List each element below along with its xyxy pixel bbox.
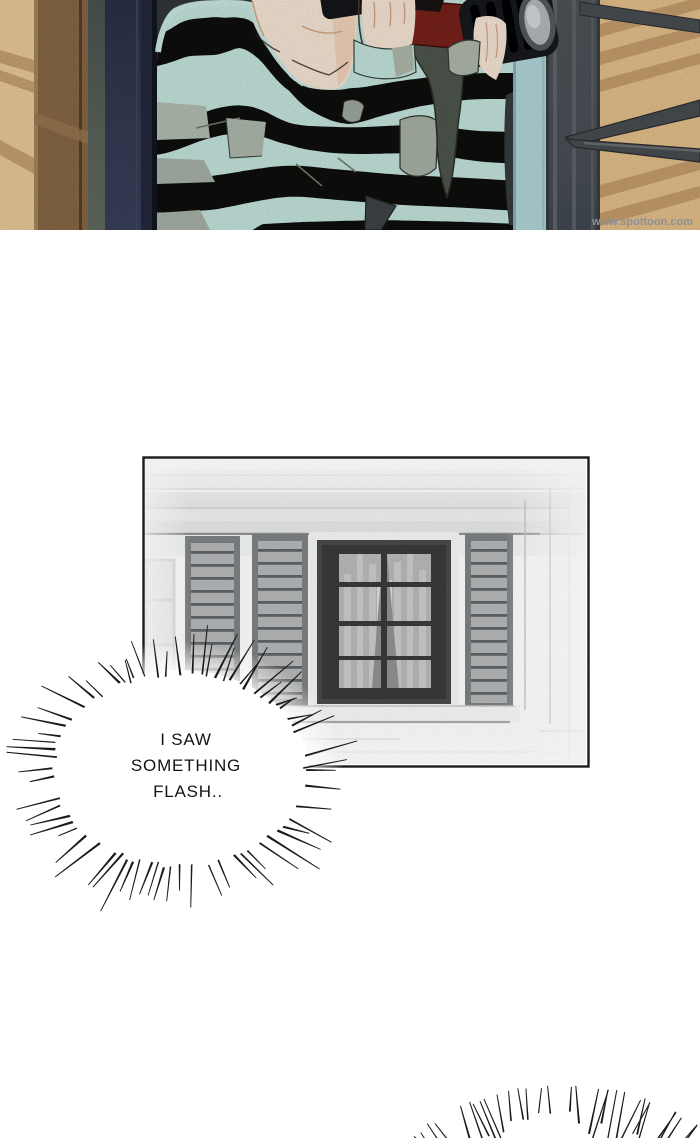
svg-text:www.spottoon.com: www.spottoon.com xyxy=(591,216,693,228)
svg-text:FLASH..: FLASH.. xyxy=(153,782,223,801)
